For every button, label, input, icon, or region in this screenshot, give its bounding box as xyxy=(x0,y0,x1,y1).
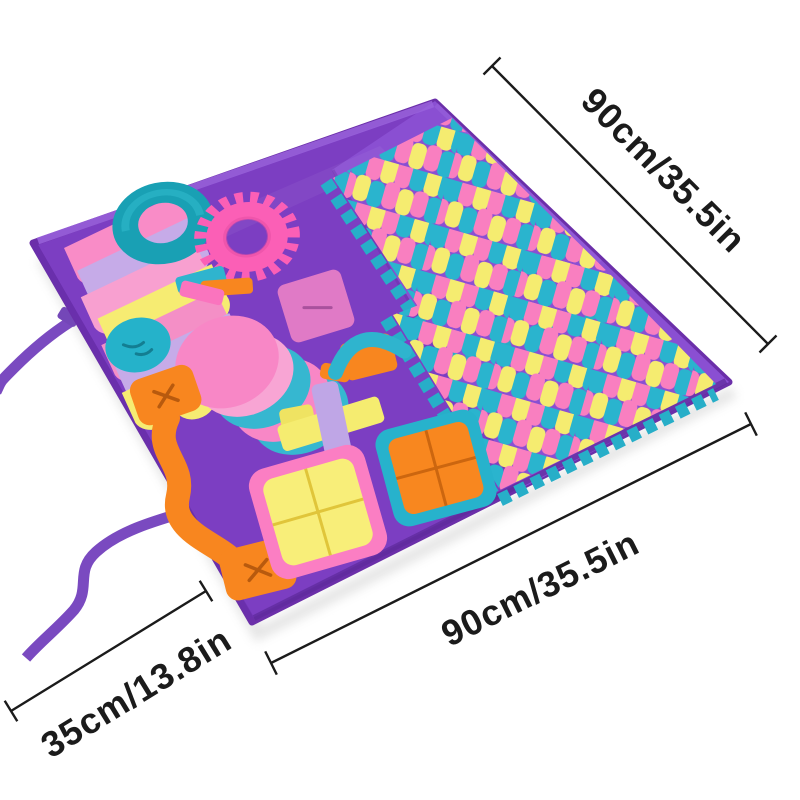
snuffle-mat-product-image: 90cm/35.5in 90cm/35.5in 35cm/13.8in xyxy=(0,0,800,800)
product-photo: 90cm/35.5in 90cm/35.5in 35cm/13.8in xyxy=(0,0,800,800)
